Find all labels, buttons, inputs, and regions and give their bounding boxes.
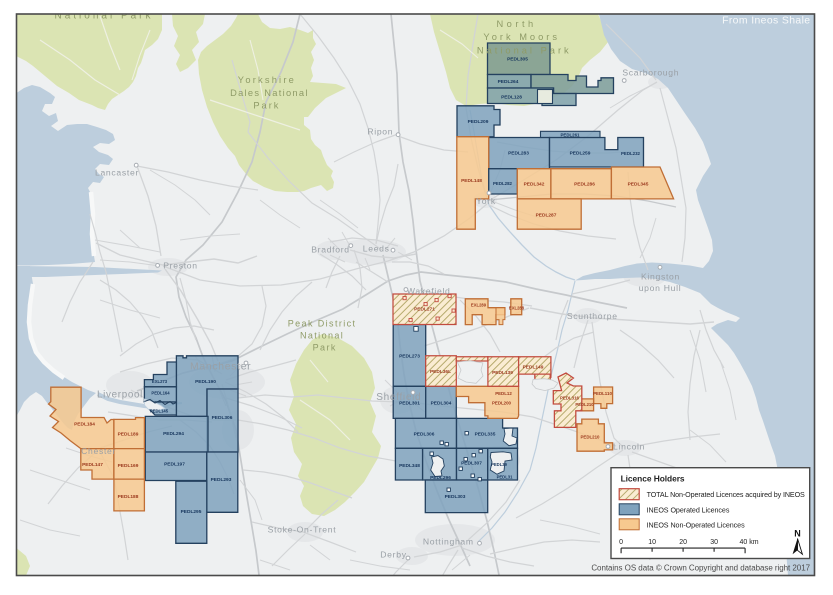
svg-text:Contains OS data © Crown Copyr: Contains OS data © Crown Copyright and d…	[591, 563, 810, 572]
svg-text:PEDL210: PEDL210	[580, 435, 600, 440]
svg-text:PEDL232: PEDL232	[621, 151, 641, 156]
svg-text:INEOS Non-Operated Licences: INEOS Non-Operated Licences	[647, 521, 745, 529]
svg-text:PEDL169: PEDL169	[118, 463, 139, 469]
svg-text:PEDL342: PEDL342	[524, 182, 545, 188]
svg-text:PEDL200: PEDL200	[492, 400, 512, 405]
svg-text:EXL288: EXL288	[509, 306, 525, 311]
svg-text:PEDL12: PEDL12	[495, 391, 512, 396]
svg-text:0: 0	[619, 539, 623, 546]
svg-text:Scunthorpe: Scunthorpe	[567, 311, 618, 321]
svg-text:EXL273: EXL273	[152, 379, 168, 384]
svg-text:PEDL31: PEDL31	[497, 475, 513, 480]
svg-text:Stoke-On-Trent: Stoke-On-Trent	[268, 525, 337, 535]
svg-text:PEDL261: PEDL261	[560, 132, 580, 137]
svg-text:PEDL287: PEDL287	[536, 213, 557, 219]
svg-text:PEDL259: PEDL259	[570, 151, 591, 157]
svg-text:PEDL335: PEDL335	[475, 432, 496, 438]
svg-text:Scarborough: Scarborough	[622, 68, 679, 78]
svg-text:Preston: Preston	[163, 261, 198, 271]
svg-text:20: 20	[679, 539, 687, 546]
svg-text:Liverpool: Liverpool	[97, 390, 143, 401]
svg-text:Leeds: Leeds	[363, 243, 390, 253]
svg-text:TOTAL Non-Operated Licences ac: TOTAL Non-Operated Licences acquired by …	[647, 491, 805, 499]
svg-text:Manchester: Manchester	[190, 362, 251, 373]
svg-text:Nottingham: Nottingham	[423, 537, 474, 547]
svg-text:PEDL128: PEDL128	[501, 95, 522, 101]
svg-text:PEDL316: PEDL316	[560, 395, 580, 400]
svg-text:PEDL293: PEDL293	[211, 477, 232, 483]
svg-text:EXL289: EXL289	[471, 303, 487, 308]
svg-text:PEDL149: PEDL149	[523, 365, 544, 371]
svg-text:upon Hull: upon Hull	[639, 283, 682, 293]
svg-text:Park: Park	[313, 343, 337, 353]
svg-text:PEDL147: PEDL147	[82, 462, 103, 468]
svg-text:PEDL189: PEDL189	[118, 432, 139, 438]
svg-text:PEDL286: PEDL286	[574, 182, 595, 188]
svg-text:PEDL164: PEDL164	[151, 391, 170, 396]
svg-text:PEDL273: PEDL273	[399, 354, 420, 360]
svg-text:PEDL295: PEDL295	[181, 509, 202, 515]
svg-text:PEDL188: PEDL188	[118, 494, 139, 500]
svg-text:PEDL190: PEDL190	[195, 379, 216, 385]
svg-text:PEDL110: PEDL110	[593, 391, 612, 396]
svg-text:PEDL348: PEDL348	[399, 463, 420, 469]
svg-text:10: 10	[648, 539, 656, 546]
svg-text:Lincoln: Lincoln	[613, 442, 645, 452]
svg-text:40 km: 40 km	[739, 539, 758, 546]
svg-text:PEDL36L: PEDL36L	[430, 369, 451, 375]
svg-text:Wakefield: Wakefield	[407, 286, 451, 296]
svg-text:PEDL345: PEDL345	[628, 182, 649, 188]
svg-text:National: National	[300, 331, 344, 341]
svg-text:National Park: National Park	[477, 46, 572, 56]
svg-text:Peak District: Peak District	[288, 319, 357, 329]
svg-text:PEDL304: PEDL304	[431, 401, 452, 407]
svg-text:Licence Holders: Licence Holders	[621, 474, 685, 484]
svg-text:N: N	[794, 529, 801, 539]
svg-text:PEDL209: PEDL209	[468, 119, 489, 125]
svg-text:PEDL139: PEDL139	[492, 370, 513, 376]
svg-text:30: 30	[710, 539, 718, 546]
svg-text:PEDL307: PEDL307	[461, 461, 482, 467]
svg-text:York: York	[476, 196, 496, 206]
svg-text:PEDL305: PEDL305	[507, 57, 528, 63]
svg-text:From Ineos Shale: From Ineos Shale	[722, 16, 810, 27]
svg-text:PEDL296: PEDL296	[430, 475, 451, 481]
svg-text:PEDL145: PEDL145	[150, 409, 169, 414]
svg-text:PEDL39: PEDL39	[491, 462, 507, 467]
svg-text:Park: Park	[253, 101, 280, 111]
svg-text:INEOS Operated Licences: INEOS Operated Licences	[647, 506, 730, 514]
svg-text:PEDL197: PEDL197	[164, 462, 185, 468]
svg-text:Ripon: Ripon	[367, 127, 393, 137]
svg-text:Chester: Chester	[81, 446, 116, 456]
svg-text:PEDL148: PEDL148	[461, 178, 482, 184]
svg-text:Bradford: Bradford	[311, 244, 350, 254]
svg-text:Derby: Derby	[380, 550, 406, 560]
svg-text:PEDL271: PEDL271	[414, 307, 435, 313]
svg-text:PEDL210: PEDL210	[575, 402, 594, 407]
svg-text:PEDL282: PEDL282	[493, 181, 513, 186]
svg-text:Dales National: Dales National	[230, 88, 309, 98]
svg-text:York Moors: York Moors	[483, 32, 560, 42]
svg-text:Kingston: Kingston	[641, 272, 680, 282]
svg-text:PEDL184: PEDL184	[74, 422, 95, 428]
svg-text:PEDL294: PEDL294	[163, 431, 184, 437]
svg-text:Yorkshire: Yorkshire	[238, 75, 296, 85]
svg-text:Lancaster: Lancaster	[95, 168, 139, 178]
svg-text:PEDL306: PEDL306	[414, 432, 435, 438]
svg-text:PEDL283: PEDL283	[508, 151, 529, 157]
svg-text:PEDL264: PEDL264	[498, 79, 519, 85]
svg-text:PEDL303: PEDL303	[445, 494, 466, 500]
svg-text:PEDL306: PEDL306	[212, 415, 233, 421]
svg-text:North: North	[496, 19, 536, 29]
